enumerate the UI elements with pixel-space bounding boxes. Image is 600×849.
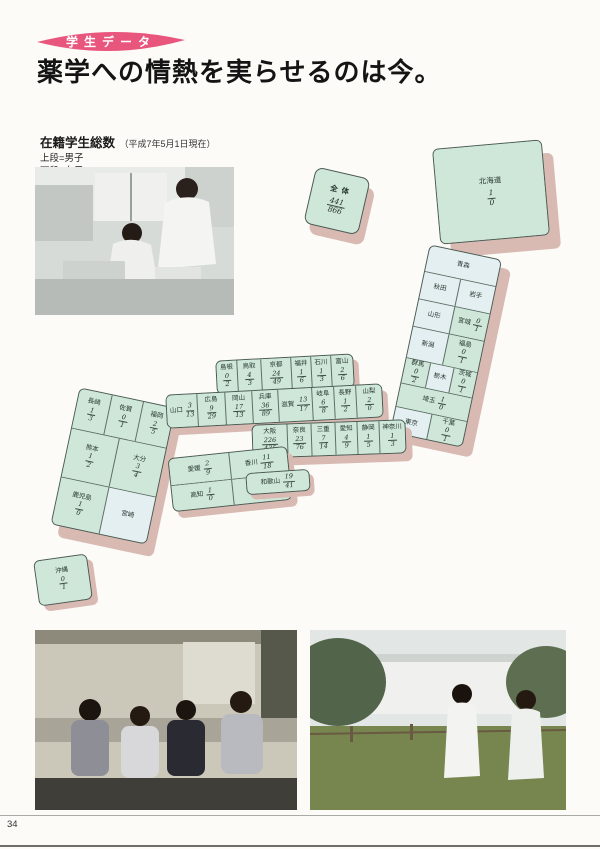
pref-oita: 大分34 [109,439,166,497]
pref-miyazaki: 宮崎 [99,488,156,544]
female-count: 0 [76,509,82,517]
male-female-fraction: 49 [342,434,351,450]
photo-students-sitting-outdoors [35,630,297,810]
male-female-fraction: 13 [388,432,397,448]
female-count: 1 [459,357,465,365]
female-count: 1 [474,326,480,334]
pref-label: 宮城 [457,318,471,327]
pref-kochi: 高知10 [171,480,233,511]
male-female-fraction: 2376 [293,436,306,452]
female-count: 9 [345,443,349,451]
brochure-page: 学生データ 薬学への情熱を実らせるのは今。 在籍学生総数 （平成7年5月1日現在… [0,0,600,849]
male-female-fraction: 26 [338,367,347,383]
male-female-fraction: 01 [472,317,483,334]
pref-wakayama: 和歌山1941 [246,470,309,494]
pref-yamaguchi: 山口313 [166,394,198,428]
male-female-fraction: 13 [317,368,326,384]
pref-label: 宮崎 [120,511,134,520]
female-count: 3 [88,415,94,423]
female-count: 0 [438,404,444,412]
female-count: 9 [206,469,211,477]
female-count: 13 [235,412,244,420]
female-count: 1 [459,387,465,395]
total-fraction: 441866 [325,196,347,218]
pref-mie: 三重714 [310,423,335,456]
pref-shiga: 滋賀1317 [277,388,313,422]
pref-label: 静岡 [362,426,375,433]
male-female-fraction: 34 [131,463,142,480]
map-row: 北海道10 [433,140,549,243]
pref-gifu: 岐阜68 [311,387,335,420]
male-female-fraction: 68 [319,399,328,415]
male-female-fraction: 1941 [283,473,296,490]
pref-yamanashi: 山梨20 [355,384,383,417]
japan-map: 全体 441866 北海道10青森秋田岩手山形宮城01新潟福島01群馬02栃木茨… [0,0,600,620]
pref-tottori: 鳥取43 [236,359,262,392]
male-female-fraction: 714 [319,435,328,451]
pref-label: 山形 [427,312,441,321]
male-female-fraction: 10 [206,486,216,503]
pref-label: 秋田 [433,284,447,293]
pref-okinawa: 沖縄01 [34,555,92,606]
male-female-fraction: 01 [58,575,68,592]
female-count: 0 [208,495,213,503]
male-female-fraction: 12 [84,453,95,470]
male-female-fraction: 12 [341,398,350,414]
pref-nagano: 長野12 [333,386,357,419]
map-block-total: 全体 441866 [303,166,371,235]
pref-shizuoka: 静岡15 [356,421,379,454]
male-female-fraction: 43 [245,371,254,387]
pref-hyogo: 兵庫3689 [251,390,279,423]
male-female-fraction: 10 [436,395,447,412]
female-count: 14 [320,443,329,451]
pref-kyoto: 京都2449 [260,358,292,392]
female-count: 6 [300,377,305,385]
female-count: 3 [320,376,325,384]
female-count: 0 [368,405,373,413]
female-count: 2 [344,406,349,414]
page-number: 34 [7,819,18,830]
pref-hiroshima: 広島929 [196,393,226,426]
male-female-fraction: 29 [203,460,213,477]
pref-label: 東京 [404,419,418,428]
pref-nara: 奈良2376 [286,424,311,457]
female-count: 0 [489,199,495,208]
female-count: 18 [263,462,272,470]
map-row: 沖縄01 [34,555,92,606]
female-count: 89 [262,410,271,418]
male-female-fraction: 16 [297,369,306,385]
photo-students-white-coats [310,630,566,810]
male-female-fraction: 20 [365,397,374,413]
female-count: 76 [296,444,305,452]
pref-label: 香川 [245,460,259,468]
female-count: 2 [225,381,230,389]
pref-okayama: 岡山1713 [224,391,253,424]
female-count: 2 [411,377,417,385]
male-female-fraction: 02 [409,368,420,385]
male-female-fraction: 25 [148,420,159,437]
map-block-kyushu: 長崎13佐賀01福岡25熊本12大分34鹿児島10宮崎 [51,387,176,544]
pref-label: 三重 [317,427,330,434]
pref-aichi: 愛知49 [334,422,357,455]
page-bottom-edge [0,845,600,847]
pref-kanagawa: 神奈川13 [378,420,405,453]
female-count: 1 [62,584,67,592]
map-block-wakayama: 和歌山1941 [245,469,310,495]
female-count: 3 [248,380,253,388]
male-female-fraction: 3689 [259,402,272,419]
male-female-fraction: 01 [117,413,128,430]
pref-label: 岩手 [468,292,482,301]
female-count: 13 [186,411,195,419]
outdoor-photo-art [35,630,297,810]
male-female-fraction: 10 [74,501,85,518]
female-count: 6 [341,375,346,383]
pref-label: 山口 [170,408,183,415]
pref-label: 和歌山 [260,479,280,487]
female-count: 5 [367,442,371,450]
female-count: 1 [442,435,448,443]
map-block-okinawa: 沖縄01 [33,553,93,606]
male-female-fraction: 1317 [297,396,310,413]
female-count: 1 [119,422,125,430]
footer-rule [0,815,600,816]
male-female-fraction: 929 [207,405,216,421]
female-count: 8 [322,408,327,416]
pref-label: 新潟 [421,341,435,350]
pref-label: 北海道 [478,176,501,185]
campus-photo-art [310,630,566,810]
female-count: 866 [327,205,343,217]
pref-ibaraki: 茨城01 [448,368,477,398]
male-female-fraction: 02 [223,373,232,389]
female-count: 29 [208,413,217,421]
pref-toyama: 富山26 [330,354,354,387]
pref-label: 愛媛 [187,466,201,474]
pref-label: 青森 [456,261,470,270]
female-count: 17 [299,405,308,413]
pref-label: 栃木 [433,373,447,382]
total-label: 全体 [326,183,354,196]
female-count: 41 [285,481,294,489]
female-count: 2 [86,461,92,469]
female-count: 49 [273,378,282,386]
female-count: 5 [150,429,156,437]
map-block-tohoku-kanto: 青森秋田岩手山形宮城01新潟福島01群馬02栃木茨城01埼玉10東京千葉01 [390,244,502,447]
male-female-fraction: 15 [364,433,373,449]
pref-label: 愛知 [340,426,353,433]
pref-fukui: 福井16 [290,357,312,390]
male-female-fraction: 01 [457,378,468,395]
pref-shimane: 島根02 [216,361,238,394]
male-female-fraction: 1713 [233,403,246,420]
pref-ishikawa: 石川13 [310,356,332,389]
male-female-fraction: 01 [440,427,451,444]
map-block-hokkaido: 北海道10 [432,139,550,244]
male-female-fraction: 313 [186,402,195,418]
pref-label: 埼玉 [422,397,436,406]
female-count: 3 [391,441,395,449]
pref-hokkaido: 北海道10 [433,140,549,243]
pref-label: 滋賀 [281,402,294,409]
pref-label: 高知 [190,492,204,500]
male-female-fraction: 13 [86,406,97,423]
male-female-fraction: 10 [486,189,496,208]
map-row: 和歌山1941 [246,470,309,494]
male-female-fraction: 2449 [270,370,283,387]
male-female-fraction: 1118 [260,453,274,470]
male-female-fraction: 01 [457,348,468,365]
female-count: 4 [133,471,139,479]
